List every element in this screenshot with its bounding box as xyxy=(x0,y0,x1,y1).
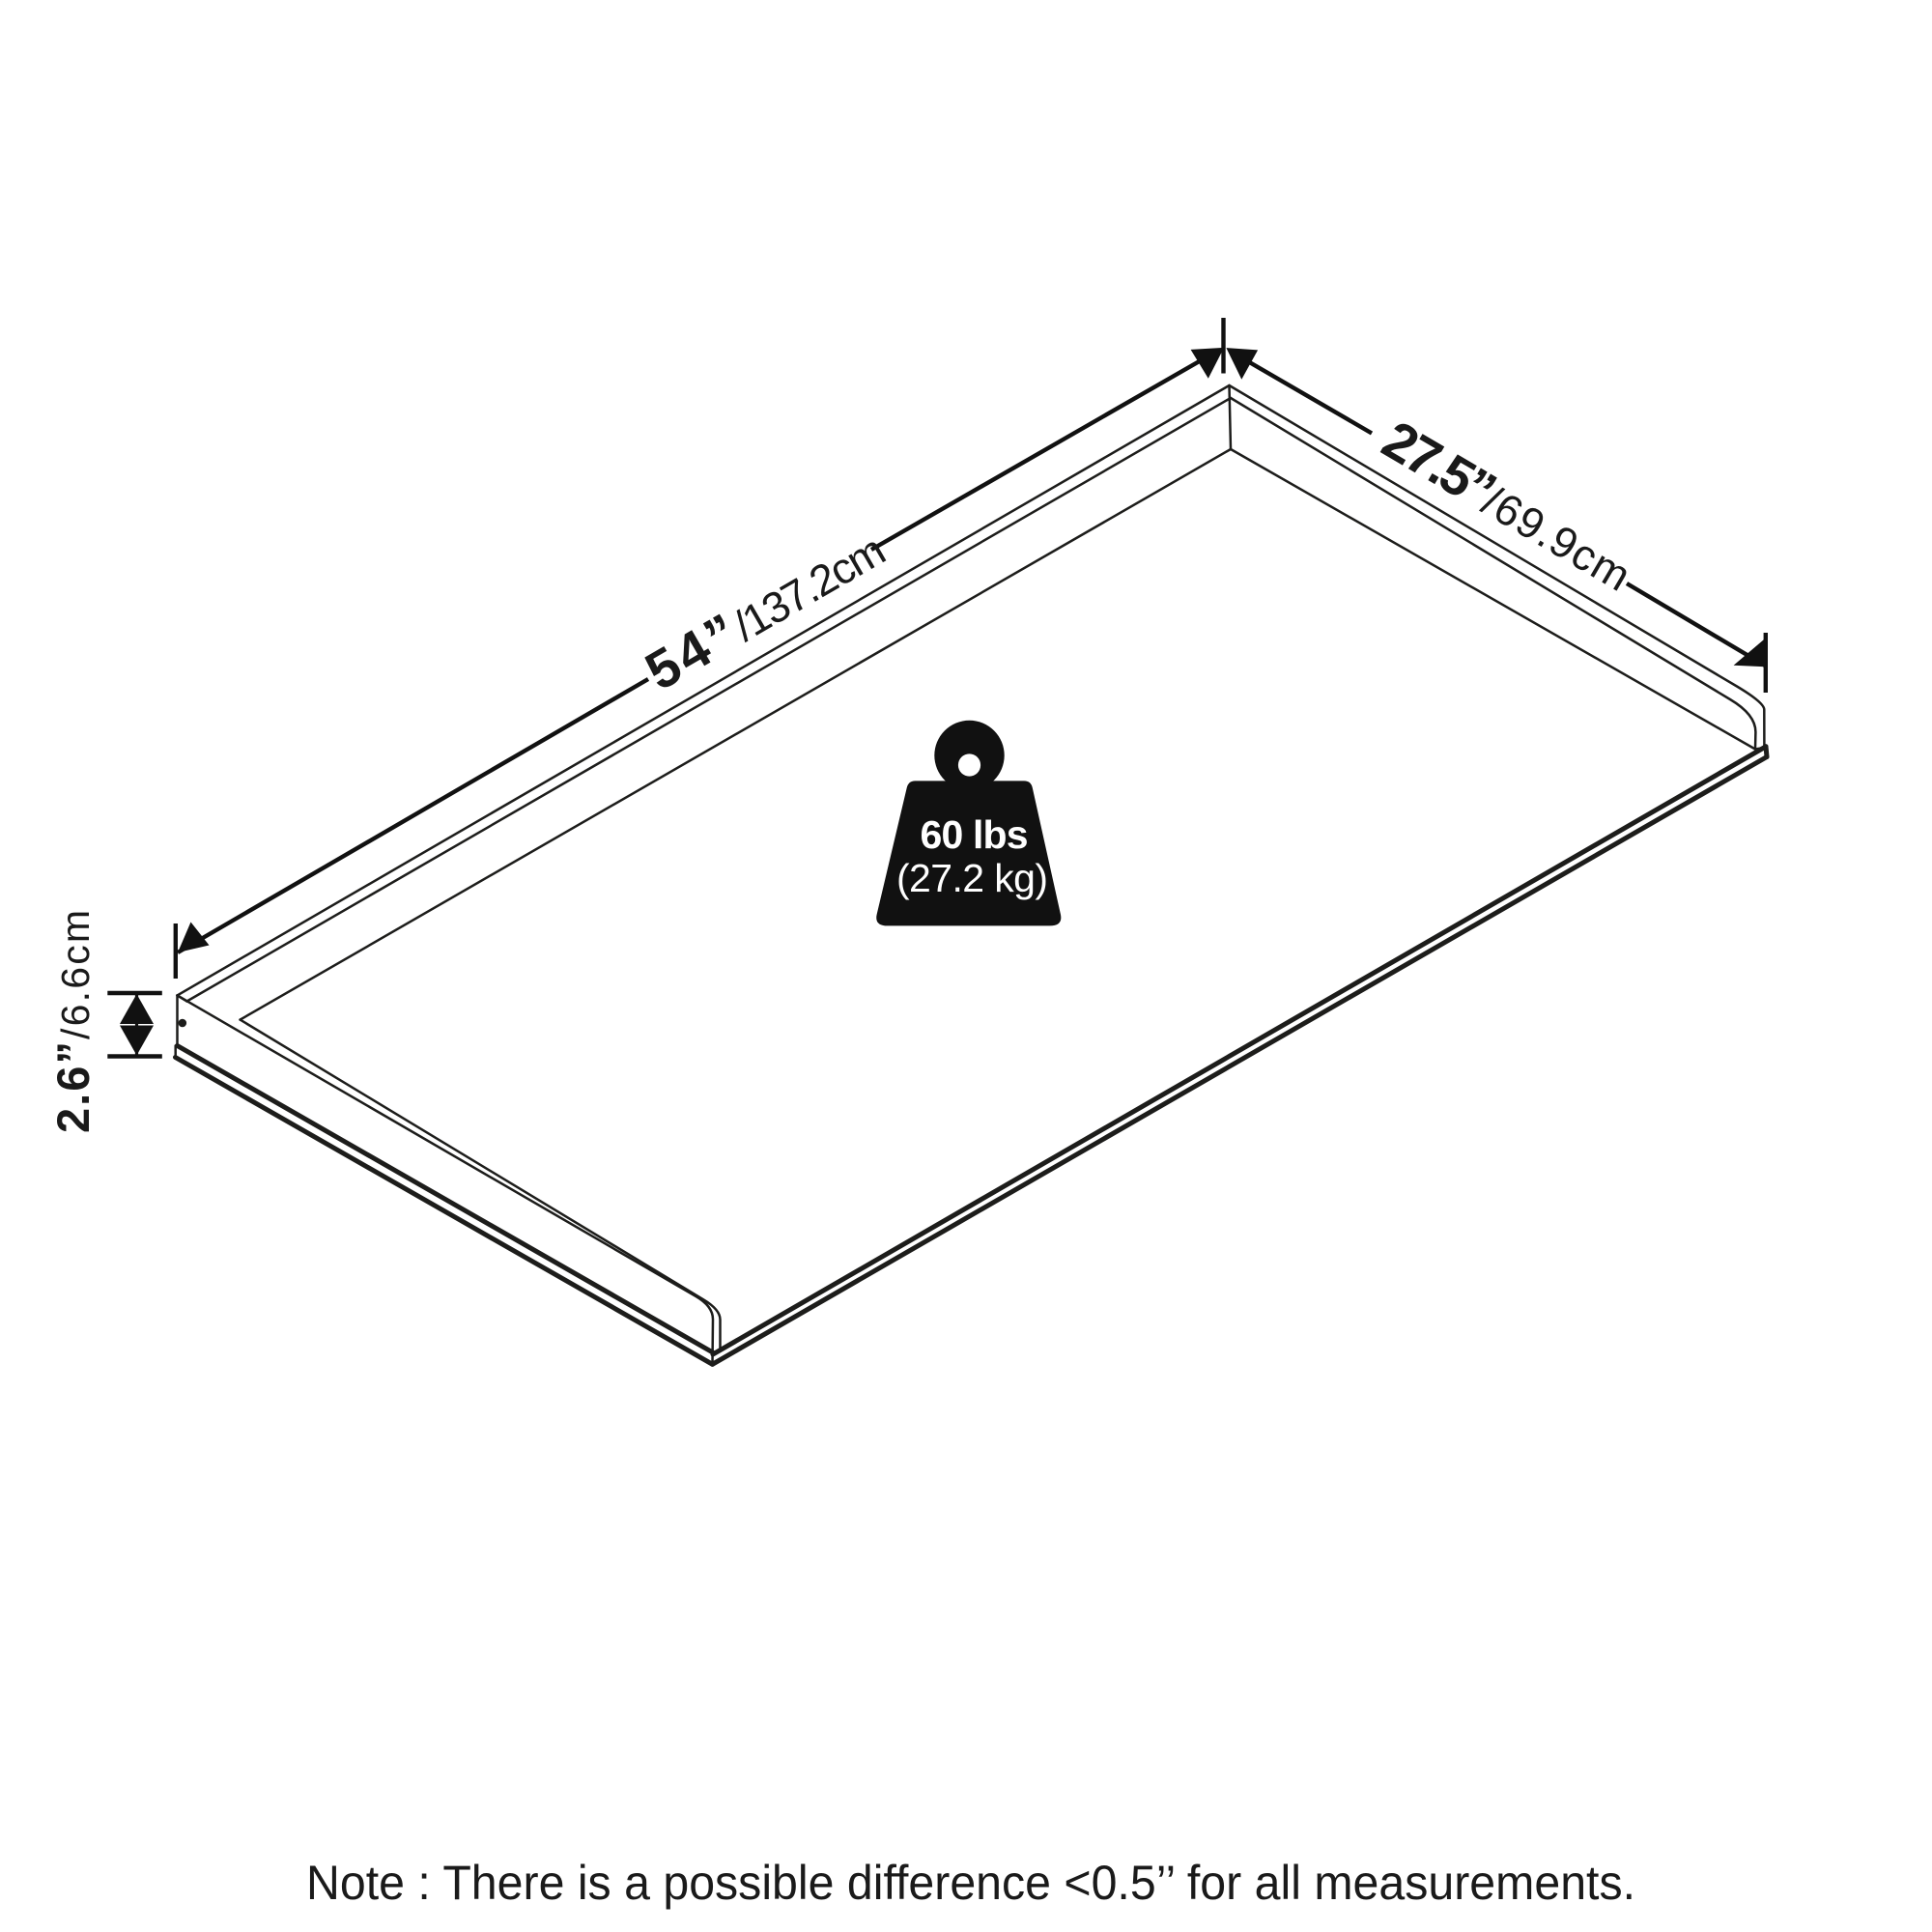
svg-text:54”/137.2cm: 54”/137.2cm xyxy=(635,517,895,702)
svg-text:2.6”/6.6cm: 2.6”/6.6cm xyxy=(47,910,99,1133)
svg-text:27.5”/69.9cm: 27.5”/69.9cm xyxy=(1373,409,1644,602)
svg-text:(27.2 kg): (27.2 kg) xyxy=(896,856,1048,900)
svg-text:60 lbs: 60 lbs xyxy=(921,812,1029,857)
svg-text:Note : There is a possible dif: Note : There is a possible difference <0… xyxy=(306,1856,1635,1910)
